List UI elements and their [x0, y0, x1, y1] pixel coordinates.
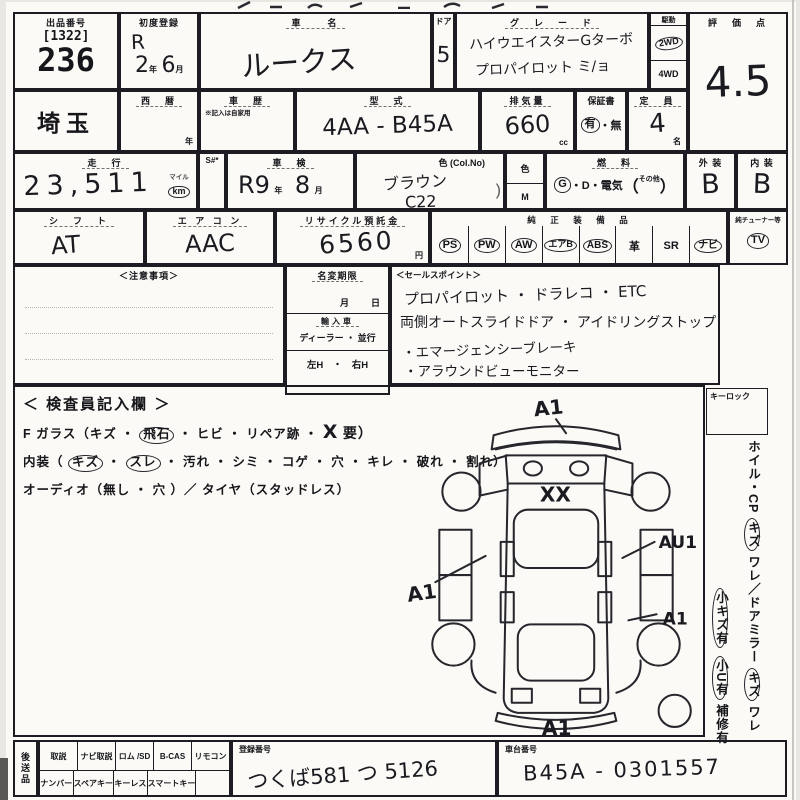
- exterior-label: 外 装: [687, 154, 734, 169]
- equip-abs: ABS: [583, 239, 612, 253]
- scan-edge-line: [792, 0, 794, 800]
- drive-2wd: 2WD: [654, 35, 684, 52]
- registration-number-box: 登録番号 つくば581 つ 5126: [231, 740, 497, 797]
- color-code: C22: [405, 189, 504, 211]
- notes-label: ＜注意事項＞: [15, 267, 283, 282]
- equipment-box: 純 正 装 備 品 PS PW AW エアB ABS 革 SR ナビ: [430, 210, 728, 265]
- interior-scuff: スレ: [126, 455, 161, 472]
- warranty-box: 保証書 有・無: [575, 90, 627, 152]
- equip-airbag: エアB: [544, 239, 577, 252]
- registration-number-value: つくば581 つ 5126: [246, 748, 495, 795]
- fuel-gasoline: G: [554, 177, 571, 192]
- damage-right-upper: AU1: [659, 533, 697, 553]
- exterior-box: 外 装 B: [685, 152, 736, 210]
- history-note: ※記入は自家用: [201, 107, 293, 117]
- grade-line1: ハイウエイスターGターボ: [469, 28, 648, 54]
- grid-bcas: B-CAS: [160, 752, 185, 761]
- lot-box: 出品番号 [1322] 236: [13, 12, 119, 90]
- front-glass-stone-chip: 飛石: [139, 427, 174, 444]
- fuel-other: その他: [639, 174, 660, 184]
- name-change-label: 名変期限: [287, 267, 388, 282]
- color-m-box: 色 M: [505, 152, 545, 210]
- warranty-yes: 有: [581, 117, 600, 132]
- import-options: ディーラー ・ 並行: [287, 327, 388, 350]
- aircon-value: AAC: [185, 227, 274, 258]
- damage-right-lower: A1: [663, 609, 688, 629]
- first-registration-era: R: [131, 28, 198, 54]
- shift-box: シ フ ト AT: [13, 210, 145, 265]
- sales-line-3: ・エマージェンシーブレーキ: [402, 330, 719, 361]
- interior-grade: B: [737, 168, 786, 201]
- drive-label: 駆動: [651, 14, 686, 26]
- displacement-box: 排気量 660 cc: [480, 90, 575, 152]
- small-dent-yes: 小U有: [712, 656, 728, 699]
- s-number-label: S#*: [200, 154, 224, 165]
- s-number-box: S#*: [198, 152, 226, 210]
- scan-edge-mark: [0, 758, 8, 800]
- grid-spare-key: スペアキー: [74, 778, 113, 789]
- first-registration-label: 初度登録: [121, 14, 197, 29]
- front-glass-x-mark: X: [323, 421, 339, 443]
- mileage-unit-mile: マイル: [162, 171, 196, 181]
- small-scratch-yes: 小キズ有: [712, 588, 728, 648]
- notes-blank-line: [25, 282, 273, 308]
- drive-4wd: 4WD: [659, 69, 679, 79]
- score-value: 4.5: [689, 55, 787, 107]
- region-box: 埼玉: [13, 90, 119, 152]
- auction-sheet: { "row1": { "lot": {"label":"出品番号","brac…: [0, 0, 800, 800]
- capacity-unit: 名: [673, 136, 681, 147]
- history-label: 車 歴: [201, 92, 293, 107]
- chassis-number-box: 車台番号 B45A - 0301557: [497, 740, 787, 797]
- sales-line-4: ・アラウンドビューモニター: [404, 360, 718, 380]
- color-paren: ): [496, 182, 501, 200]
- import-label: 輸入車: [287, 314, 388, 327]
- notes-blank-line: [25, 334, 273, 360]
- tuner-tv: TV: [747, 233, 769, 248]
- equip-ps: PS: [439, 238, 462, 253]
- inspection-month: 8: [295, 171, 310, 199]
- capacity-label: 定 員: [629, 92, 686, 107]
- keylock-box: キーロック: [706, 388, 768, 435]
- recycle-value: 6560: [318, 223, 429, 260]
- grid-number-plate: ナンバー: [40, 778, 72, 789]
- model-code-box: 型 式 4AA - B45A: [295, 90, 480, 152]
- grid-navi-manual: ナビ取説: [81, 751, 113, 762]
- car-diagram: A1 XX A1 AU1 A1 A1: [405, 391, 707, 737]
- displacement-unit: cc: [559, 138, 568, 147]
- lot-label: 出品番号: [15, 14, 117, 29]
- later-items-box: 後送品: [13, 740, 38, 797]
- sales-points-box: ＜セールスポイント＞ プロパイロット ・ ドラレコ ・ ETC 両側オートスライ…: [390, 265, 720, 385]
- door-value: 5: [434, 43, 454, 69]
- interior-scratch: キズ: [68, 455, 103, 472]
- region-value: 埼玉: [37, 104, 95, 138]
- name-change-box: 名変期限 月日 輸入車 ディーラー ・ 並行 左H ・ 右H: [285, 265, 390, 395]
- equip-leather: 革: [629, 238, 640, 254]
- mirror-scratch: キズ: [744, 668, 760, 701]
- lot-number: 236: [15, 44, 117, 76]
- car-name-label: 車 名: [201, 14, 430, 29]
- sales-line-1: プロパイロット ・ ドラレコ ・ ETC: [404, 278, 719, 310]
- sales-line-2: 両側オートスライドドア ・ アイドリングストップ: [400, 312, 718, 332]
- mileage-value: 23,511: [15, 166, 163, 202]
- handle-options-box: 左H ・ 右H: [287, 350, 388, 376]
- sidebar-scratch-line: 小キズ有 小U有 補修有: [712, 588, 731, 748]
- recycle-box: リサイクル預託金 6560 円: [275, 210, 430, 265]
- chassis-number-value: B45A - 0301557: [523, 752, 786, 785]
- exterior-grade: B: [686, 168, 734, 201]
- tuner-box: 純チューナー等 TV: [728, 210, 788, 265]
- first-registration-month: 6: [161, 53, 175, 78]
- damage-left: A1: [405, 579, 438, 607]
- history-box: 車 歴 ※記入は自家用: [199, 90, 295, 152]
- damage-hood: XX: [540, 483, 572, 507]
- west-year-label: 西 暦: [121, 92, 197, 107]
- color-box: 色 (Col.No) ブラウン C22 ): [355, 152, 505, 210]
- warranty-label: 保証書: [577, 92, 625, 107]
- interior-box: 内 装 B: [736, 152, 788, 210]
- shift-value: AT: [50, 226, 144, 260]
- car-name-box: 車 名 ルークス: [199, 12, 432, 90]
- damage-front: A1: [533, 394, 565, 421]
- equipment-label: 純 正 装 備 品: [432, 212, 726, 226]
- score-label: 評 価 点: [690, 14, 786, 29]
- first-registration-box: 初度登録 R 2年 6月: [119, 12, 199, 90]
- west-year-unit: 年: [185, 136, 193, 147]
- interior-label: 内 装: [738, 154, 786, 169]
- first-registration-year: 2: [135, 53, 149, 78]
- recycle-unit: 円: [415, 250, 423, 261]
- inspector-box: ＜ 検査員記入欄 ＞ F ガラス（キズ ・ 飛石 ・ ヒビ ・ リペア跡 ・ X…: [13, 385, 705, 737]
- mileage-label: 走 行: [15, 154, 196, 169]
- score-box: 評 価 点 4.5: [688, 12, 788, 152]
- model-code-label: 型 式: [297, 92, 478, 107]
- aircon-box: エ ア コ ン AAC: [145, 210, 275, 265]
- warranty-no: 無: [611, 117, 622, 133]
- equip-aw: AW: [511, 238, 537, 253]
- aircon-label: エ ア コ ン: [147, 212, 273, 227]
- keylock-label: キーロック: [707, 389, 767, 402]
- grid-smart-key: スマートキー: [148, 778, 196, 789]
- drive-box: 駆動 2WD 4WD: [649, 12, 688, 90]
- west-year-box: 西 暦 年: [119, 90, 199, 152]
- inspection-box: 車 検 R9 年 8 月: [226, 152, 355, 210]
- fuel-label: 燃 料: [547, 154, 683, 169]
- grid-keyless: キーレス: [114, 778, 146, 789]
- notes-blank-line: [25, 308, 273, 334]
- sidebar-wheel-line: ホイル・CP キズ ワレ／ドアミラー キズ ワレ: [744, 440, 763, 740]
- grade-box: グ レ ー ド ハイウエイスターGターボ プロパイロット ミ/ョ: [455, 12, 649, 90]
- later-items-label: 後送品: [19, 752, 32, 785]
- car-name-value: ルークス: [240, 30, 431, 85]
- capacity-box: 定 員 4 名: [627, 90, 688, 152]
- grid-manual: 取説: [51, 751, 67, 762]
- equip-sr: SR: [664, 240, 679, 252]
- door-box: ドア 5: [432, 12, 455, 90]
- mileage-unit-km: km: [168, 186, 189, 199]
- grid-rom-sd: ロム /SD: [119, 751, 151, 762]
- grid-remote: リモコン: [195, 751, 227, 762]
- fuel-box: 燃 料 G・D・電気（その他）: [545, 152, 685, 210]
- displacement-label: 排気量: [482, 92, 573, 107]
- displacement-value: 660: [481, 108, 574, 142]
- grade-label: グ レ ー ド: [457, 14, 647, 29]
- grade-line2: プロパイロット ミ/ョ: [475, 54, 648, 80]
- equipment-items: PS PW AW エアB ABS 革 SR ナビ: [432, 226, 726, 265]
- notes-box: ＜注意事項＞: [13, 265, 285, 385]
- mileage-box: 走 行 23,511 マイル km: [13, 152, 198, 210]
- door-label: ドア: [434, 14, 453, 27]
- inspection-era: R9: [238, 171, 270, 199]
- inspection-label: 車 検: [228, 154, 353, 169]
- tuner-label: 純チューナー等: [730, 212, 786, 224]
- shift-label: シ フ ト: [15, 212, 143, 227]
- wheel-scratch: キズ: [744, 518, 760, 551]
- damage-rear: A1: [542, 716, 572, 737]
- model-code-value: 4AA - B45A: [297, 110, 479, 142]
- equip-navi: ナビ: [694, 239, 722, 253]
- accessories-grid: 取説 ナビ取説 ロム /SD B-CAS リモコン ナンバー スペアキー キーレ…: [38, 740, 231, 797]
- cropped-title-marks: [230, 0, 560, 9]
- equip-pw: PW: [474, 238, 500, 253]
